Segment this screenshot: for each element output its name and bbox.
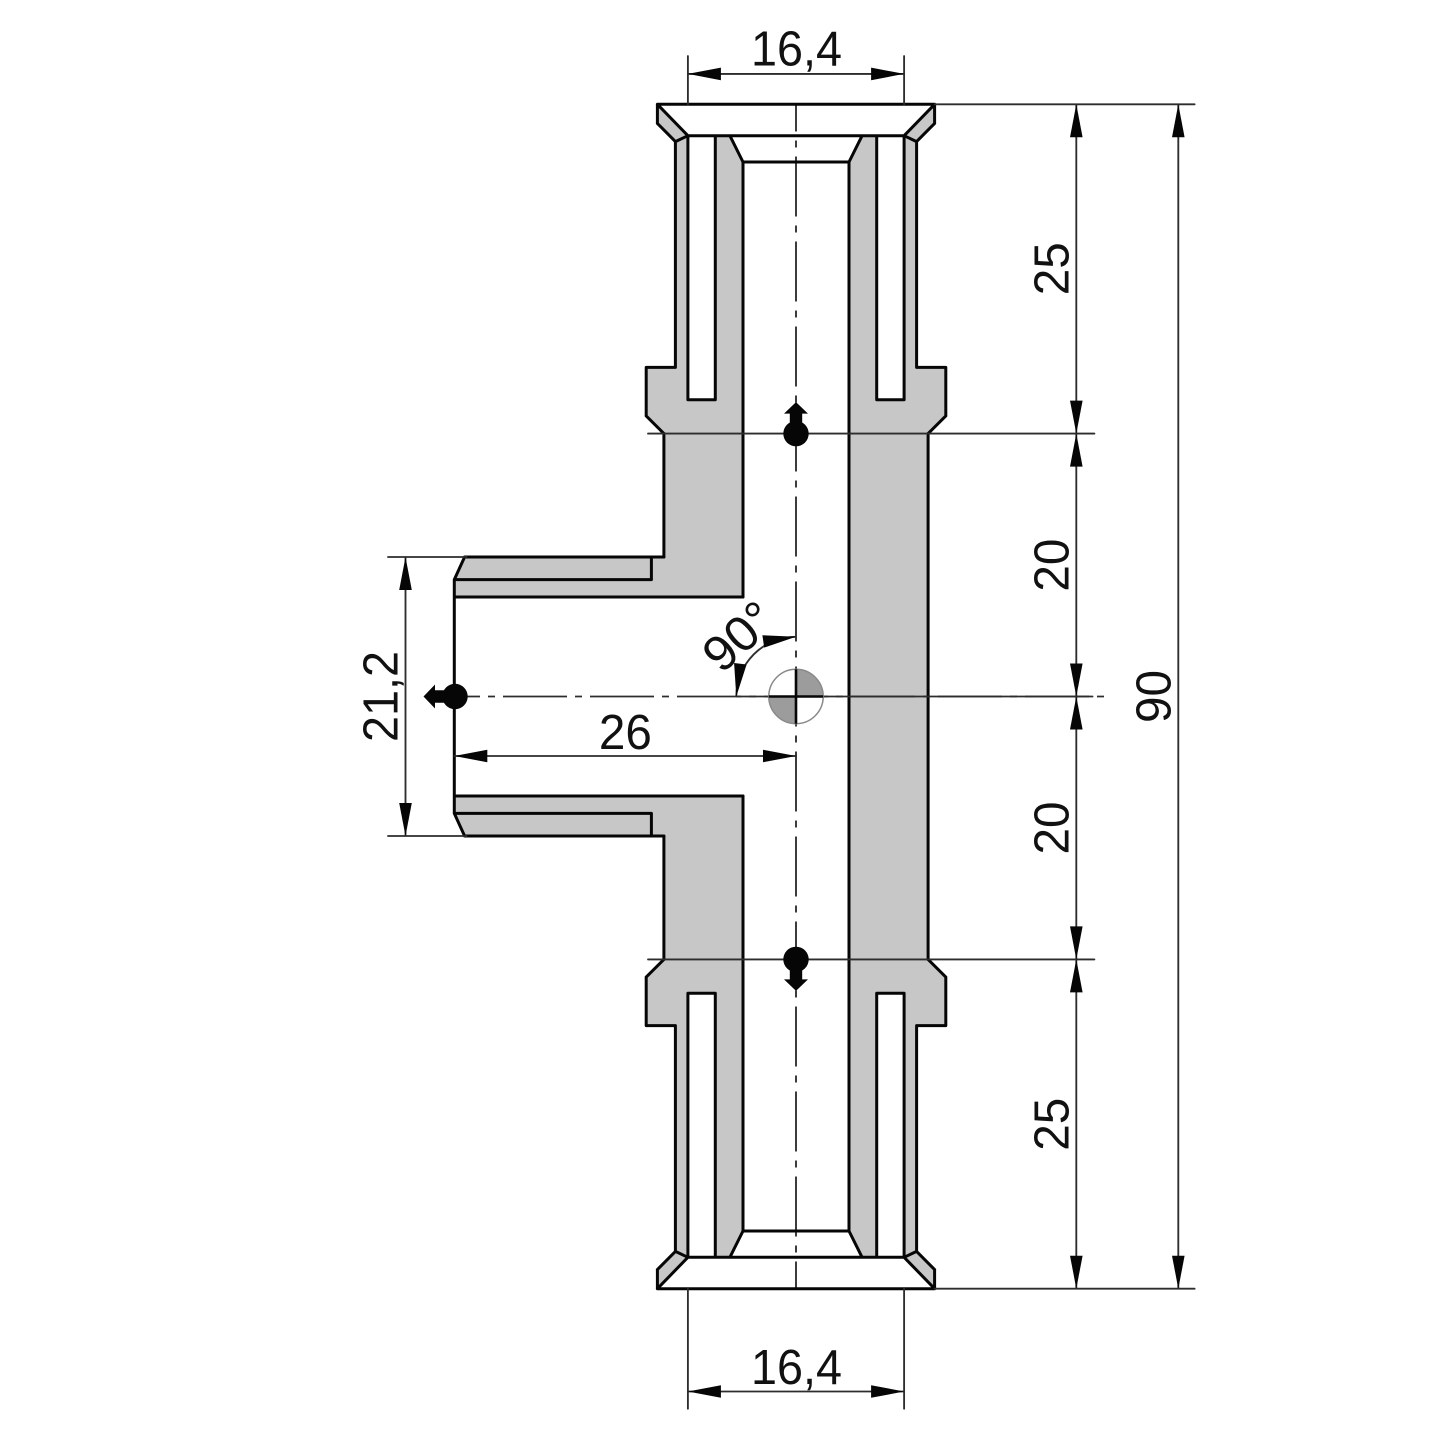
svg-text:21,2: 21,2 [354, 651, 409, 742]
svg-text:25: 25 [1025, 242, 1080, 295]
svg-text:16,4: 16,4 [751, 21, 842, 76]
svg-text:26: 26 [599, 705, 652, 760]
svg-text:25: 25 [1025, 1098, 1080, 1151]
svg-text:20: 20 [1025, 802, 1080, 855]
svg-text:16,4: 16,4 [751, 1340, 842, 1395]
svg-text:20: 20 [1025, 539, 1080, 592]
svg-text:90: 90 [1127, 670, 1182, 723]
